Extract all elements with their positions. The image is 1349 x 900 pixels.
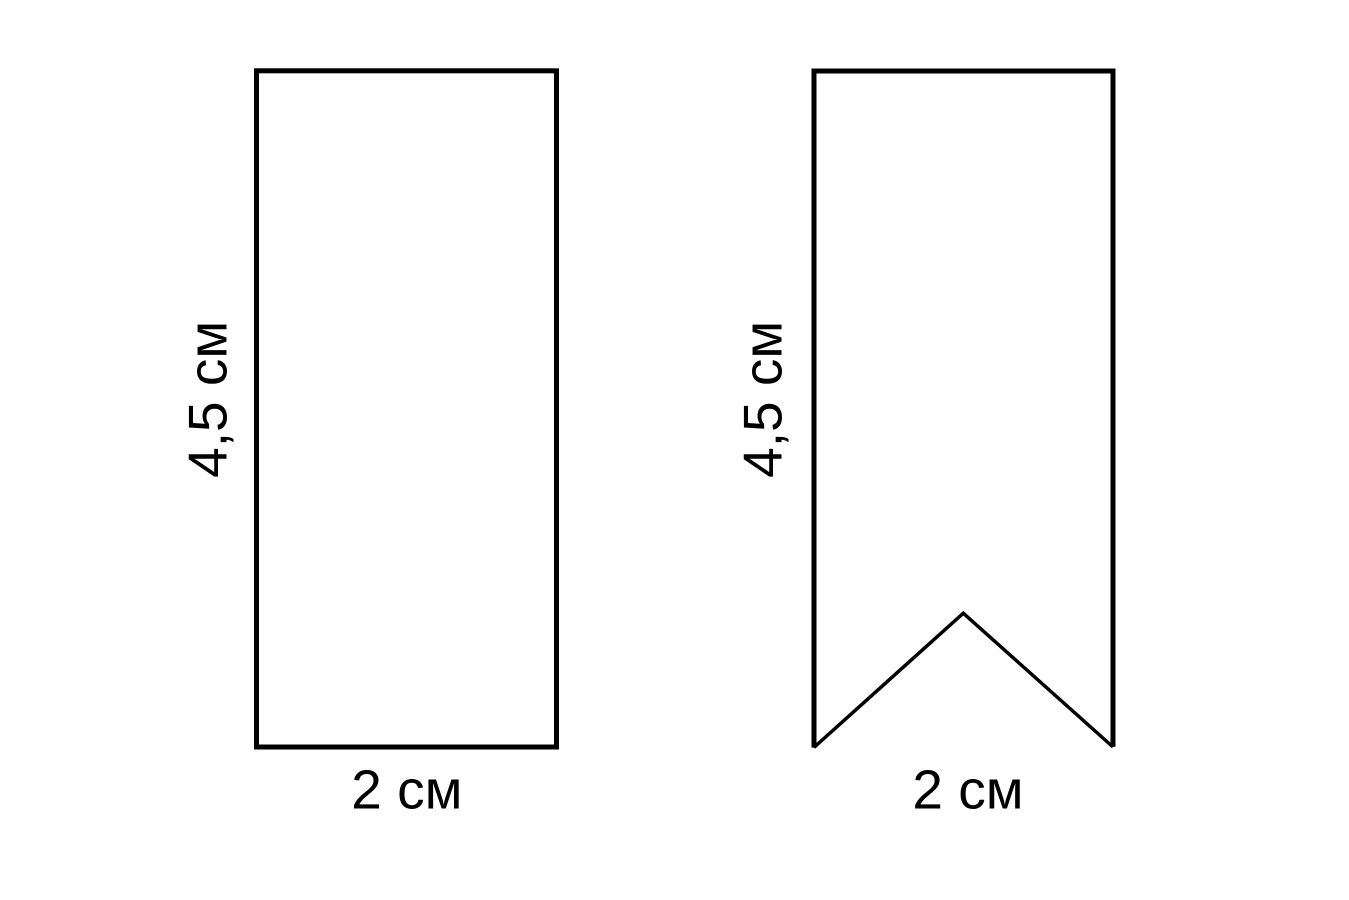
svg-text:2 см: 2 см — [912, 759, 1023, 821]
svg-text:2 см: 2 см — [351, 759, 462, 821]
svg-text:4,5 см: 4,5 см — [177, 321, 239, 478]
svg-text:4,5 см: 4,5 см — [732, 321, 794, 478]
